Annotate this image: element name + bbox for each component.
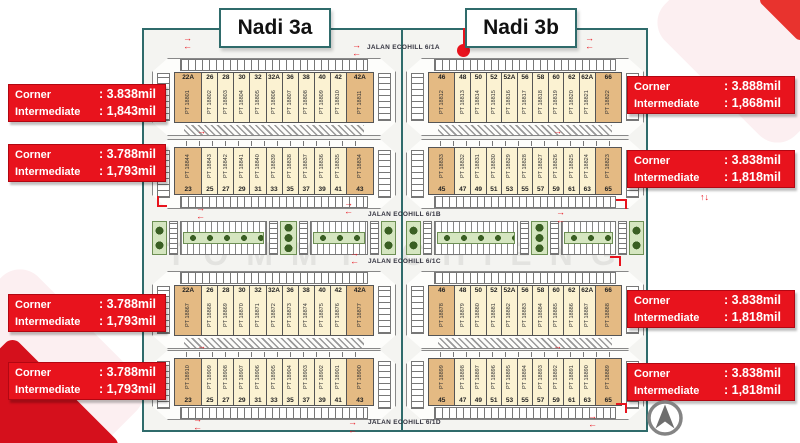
pt-number: PT 18840 [255,148,261,185]
pt-number: PT 18834 [357,148,363,185]
side-parking-strip [378,73,391,121]
pt-number: PT 18808 [303,82,309,122]
pt-number: PT 18806 [271,82,277,122]
housing-block: 22APT 1886726PT 1886828PT 1886930PT 1887… [152,271,396,349]
pt-number: PT 18872 [271,295,277,335]
lot-number: 45 [429,396,454,405]
landscaped-parking-strip [434,221,518,255]
pt-number: PT 18905 [271,359,277,396]
street-parking-strip [434,196,616,208]
back-lane-hatch [438,125,612,135]
price-banner: Corner: 3.788mil Intermediate: 1,793mil [8,362,166,400]
lot: 22APT 18867 [175,286,201,335]
block-middle: PT 1883345PT 1883247PT 1883149PT 1883051… [426,140,624,208]
traffic-arrow-icon: →← [348,419,357,434]
price-label: Intermediate [634,312,724,326]
lot-number: 29 [234,396,249,405]
pt-number: PT 18900 [357,359,363,396]
pt-number: PT 18812 [439,82,445,122]
pt-number: PT 18888 [605,295,611,335]
section-divider-line [401,28,403,432]
pt-number: PT 18818 [538,82,544,122]
lot-number: 38 [299,73,314,82]
lot-number: 62 [564,73,579,82]
price-value: : 3.788mil [99,365,159,381]
side-parking-strip [411,73,424,121]
housing-block: PT 1883345PT 1883247PT 1883149PT 1883051… [406,139,644,209]
lot-number: 31 [250,396,265,405]
pt-number: PT 18897 [475,359,481,396]
pt-number: PT 18895 [506,359,512,396]
lot-number: 55 [518,185,533,194]
pt-number: PT 18886 [569,295,575,335]
price-value: : 1,843mil [99,104,159,120]
lot-row: PT 1884423PT 1884325PT 1884227PT 1884129… [174,147,374,195]
street-label-6-1b: JALAN ECOHILL 6/1B [368,211,441,218]
lot: PT 1883247 [454,148,470,194]
traffic-arrow-icon: → [197,128,206,136]
pt-number: PT 18890 [584,359,590,396]
lot: 62PT 18820 [563,73,579,122]
lot: 58PT 18818 [532,73,548,122]
lot: PT 1890925 [201,359,217,405]
lot: PT 1884227 [217,148,233,194]
pt-number: PT 18903 [303,359,309,396]
price-banner: Corner: 3.788mil Intermediate: 1,793mil [8,294,166,332]
price-banner: Corner: 3.888mil Intermediate: 1,868mil [627,76,795,114]
block-middle: PT 1891023PT 1890925PT 1890827PT 1890729… [172,351,376,419]
lot-number: 28 [218,73,233,82]
lot: PT 1891023 [175,359,201,405]
street-parking-strip [434,59,616,71]
lot: PT 1890729 [233,359,249,405]
lot-row: 22APT 1886726PT 1886828PT 1886930PT 1887… [174,285,374,336]
pt-number: PT 18909 [207,359,213,396]
north-arrow-icon [645,398,685,438]
lot: 40PT 18875 [314,286,330,335]
pt-number: PT 18842 [223,148,229,185]
traffic-arrow-icon: → [197,343,206,351]
lot-number: 38 [299,286,314,295]
lot-number: 36 [283,73,298,82]
lot-number: 61 [564,396,579,405]
pt-number: PT 18827 [538,148,544,185]
lot-number: 45 [429,185,454,194]
price-value: : 1,793mil [99,314,159,330]
parking-bay-strip [169,221,178,255]
lot-number: 40 [315,73,330,82]
lot: PT 1888965 [595,359,621,405]
pt-number: PT 18811 [357,82,363,122]
lot: 32APT 18806 [266,73,282,122]
block-middle: 22APT 1880126PT 1880228PT 1880330PT 1880… [172,59,376,135]
pt-number: PT 18830 [491,148,497,185]
lot-number: 43 [347,396,373,405]
lot-row: 46PT 1881248PT 1881350PT 1881452PT 18815… [428,72,622,123]
pt-number: PT 18867 [185,295,191,335]
section-title-nadi-3b: Nadi 3b [465,8,577,48]
section-title-nadi-3a: Nadi 3a [219,8,331,48]
pt-number: PT 18833 [439,148,445,185]
lot-number: 53 [502,185,517,194]
lot-number: 32A [267,73,282,82]
lot: PT 1883639 [314,148,330,194]
lot: PT 1890435 [282,359,298,405]
pt-number: PT 18817 [522,82,528,122]
housing-block: PT 1884423PT 1884325PT 1884227PT 1884129… [152,139,396,209]
lot-number: 29 [234,185,249,194]
price-value: : 1,868mil [724,96,788,112]
pt-number: PT 18906 [255,359,261,396]
price-value: : 1,818mil [724,170,788,186]
lot: 66PT 18888 [595,286,621,335]
pt-number: PT 18876 [335,295,341,335]
road-corner-mark [616,199,627,209]
lot-number: 52 [487,73,502,82]
lot-number: 51 [487,396,502,405]
pt-number: PT 18841 [239,148,245,185]
lot-number: 31 [250,185,265,194]
price-label: Corner [634,155,724,169]
pt-number: PT 18870 [239,295,245,335]
pt-number: PT 18902 [319,359,325,396]
lot-number: 42 [331,73,346,82]
lot: PT 1883737 [298,148,314,194]
lot: PT 1889455 [517,359,533,405]
pt-number: PT 18885 [553,295,559,335]
pt-number: PT 18896 [491,359,497,396]
pt-number: PT 18829 [506,148,512,185]
lot-number: 35 [283,396,298,405]
pt-number: PT 18839 [271,148,277,185]
lot-number: 41 [331,185,346,194]
parking-bay-strip [269,221,278,255]
pt-number: PT 18802 [207,82,213,122]
pt-number: PT 18875 [319,295,325,335]
traffic-arrow-icon: →← [196,205,205,220]
lot: PT 1882757 [532,148,548,194]
lot-number: 33 [267,396,282,405]
pt-number: PT 18832 [460,148,466,185]
pt-number: PT 18898 [460,359,466,396]
lot: PT 1890533 [266,359,282,405]
pt-number: PT 18825 [569,148,575,185]
lot-number: 66 [596,286,621,295]
lot: PT 1889651 [486,359,502,405]
traffic-arrow-icon: →← [352,42,361,57]
lot-row: PT 1883345PT 1883247PT 1883149PT 1883051… [428,147,622,195]
pt-number: PT 18844 [185,148,191,185]
lot-number: 41 [331,396,346,405]
price-value: : 3.838mil [724,153,788,169]
lot-number: 49 [471,185,486,194]
back-lane-hatch [184,125,364,135]
price-value: : 3.838mil [724,366,788,382]
pt-number: PT 18805 [255,82,261,122]
traffic-arrow-icon: →← [344,200,353,215]
lot: 60PT 18819 [548,73,564,122]
block-middle: PT 1889945PT 1889847PT 1889749PT 1889651… [426,351,624,419]
price-value: : 3.838mil [99,87,159,103]
pt-number: PT 18883 [522,295,528,335]
lot: 66PT 18822 [595,73,621,122]
lot: 52PT 18815 [486,73,502,122]
lot: 62PT 18886 [563,286,579,335]
lot-number: 49 [471,396,486,405]
lot-number: 23 [175,185,201,194]
lot: PT 1890043 [346,359,373,405]
lot: 52PT 18881 [486,286,502,335]
block-middle: 46PT 1881248PT 1881350PT 1881452PT 18815… [426,59,624,135]
side-parking-strip [378,150,391,198]
lot: PT 1890141 [330,359,346,405]
lot: 38PT 18808 [298,73,314,122]
pt-number: PT 18869 [223,295,229,335]
lot-number: 42A [347,286,373,295]
pt-number: PT 18823 [605,148,611,185]
lot: 42PT 18876 [330,286,346,335]
traffic-arrow-icon: → [553,343,562,351]
block-middle: 46PT 1887848PT 1887950PT 1888052PT 18881… [426,272,624,348]
pt-number: PT 18843 [207,148,213,185]
price-label: Corner [15,299,99,313]
price-value: : 1,793mil [99,164,159,180]
pt-number: PT 18826 [553,148,559,185]
lot-edge-ticks [186,141,362,146]
lot-number: 32A [267,286,282,295]
landscaped-parking-strip [310,221,368,255]
lot: 30PT 18870 [233,286,249,335]
pt-number: PT 18907 [239,359,245,396]
lot-number: 37 [299,396,314,405]
lot-row: 46PT 1887848PT 1887950PT 1888052PT 18881… [428,285,622,336]
pt-number: PT 18881 [491,295,497,335]
lot: PT 1889749 [470,359,486,405]
pt-number: PT 18807 [287,82,293,122]
tree-cluster [152,221,167,255]
lot-number: 26 [202,73,217,82]
price-value: : 3.888mil [724,79,788,95]
lot: 40PT 18809 [314,73,330,122]
lot-number: 51 [487,185,502,194]
lot-number: 46 [429,286,454,295]
lot: PT 1889063 [579,359,595,405]
pt-number: PT 18889 [605,359,611,396]
lot: 58PT 18884 [532,286,548,335]
pt-number: PT 18871 [255,295,261,335]
lot-number: 63 [580,185,595,194]
lot: 48PT 18813 [454,73,470,122]
pt-number: PT 18804 [239,82,245,122]
lot-number: 42 [331,286,346,295]
lot-number: 50 [471,73,486,82]
pt-number: PT 18828 [522,148,528,185]
landscaped-parking-strip [180,221,267,255]
lot: PT 1884031 [249,148,265,194]
lot-number: 52A [502,73,517,82]
back-lane-hatch [438,338,612,348]
traffic-arrow-icon: →← [588,413,597,428]
lot-number: 55 [518,396,533,405]
lot-number: 56 [518,286,533,295]
lot: 48PT 18879 [454,286,470,335]
lot-number: 36 [283,286,298,295]
lot-number: 59 [549,396,564,405]
price-banner: Corner: 3.838mil Intermediate: 1,843mil [8,84,166,122]
lot-number: 48 [455,73,470,82]
lot-number: 59 [549,185,564,194]
street-parking-strip [180,272,368,284]
lot-number: 25 [202,185,217,194]
lot-number: 62A [580,73,595,82]
lot: PT 1884325 [201,148,217,194]
side-parking-strip [378,361,391,409]
pt-number: PT 18824 [584,148,590,185]
price-label: Intermediate [15,106,99,120]
lot: PT 1883933 [266,148,282,194]
lot: PT 1889259 [548,359,564,405]
lot-number: 39 [315,185,330,194]
pt-number: PT 18878 [439,295,445,335]
lot: PT 1890827 [217,359,233,405]
pt-number: PT 18882 [506,295,512,335]
street-label-6-1a: JALAN ECOHILL 6/1A [367,44,440,51]
site-plan: TOMMY CHIENG Nadi 3a Nadi 3b JALAN ECOHI… [0,0,800,443]
lot-number: 50 [471,286,486,295]
pt-number: PT 18891 [569,359,575,396]
pt-number: PT 18813 [460,82,466,122]
pt-number: PT 18893 [538,359,544,396]
lot-number: 32 [250,286,265,295]
lot: 46PT 18878 [429,286,454,335]
lot-number: 52 [487,286,502,295]
lot-number: 42A [347,73,373,82]
lot: PT 1883443 [346,148,373,194]
road-corner-mark [616,403,627,413]
housing-block: PT 1889945PT 1889847PT 1889749PT 1889651… [406,350,644,420]
pt-number: PT 18822 [605,82,611,122]
lot-number: 48 [455,286,470,295]
lot-number: 57 [533,185,548,194]
pt-number: PT 18838 [287,148,293,185]
price-value: : 3.788mil [99,297,159,313]
pt-number: PT 18868 [207,295,213,335]
price-label: Intermediate [15,166,99,180]
street-label-6-1d: JALAN ECOHILL 6/1D [368,419,441,426]
lot: 26PT 18868 [201,286,217,335]
parking-bay-strip [423,221,432,255]
landscaped-median [152,221,396,255]
block-middle: 22APT 1886726PT 1886828PT 1886930PT 1887… [172,272,376,348]
lot: PT 1890631 [249,359,265,405]
street-parking-strip [434,272,616,284]
lot-row: 22APT 1880126PT 1880228PT 1880330PT 1880… [174,72,374,123]
lot-number: 61 [564,185,579,194]
pt-number: PT 18821 [584,82,590,122]
lot-number: 52A [502,286,517,295]
lot-number: 57 [533,396,548,405]
lot: PT 1882365 [595,148,621,194]
lot: PT 1883051 [486,148,502,194]
pt-number: PT 18815 [491,82,497,122]
lot: 30PT 18804 [233,73,249,122]
housing-block: 22APT 1880126PT 1880228PT 1880330PT 1880… [152,58,396,136]
lot-number: 23 [175,396,201,405]
pt-number: PT 18801 [185,82,191,122]
lot-number: 46 [429,73,454,82]
price-banner: Corner: 3.788mil Intermediate: 1,793mil [8,144,166,182]
lot: 56PT 18883 [517,286,533,335]
lot: PT 1884129 [233,148,249,194]
lot: PT 1889847 [454,359,470,405]
price-value: : 3.788mil [99,147,159,163]
lot-number: 26 [202,286,217,295]
lot: PT 1883835 [282,148,298,194]
side-parking-strip [411,150,424,198]
street-parking-strip [180,407,368,419]
lot: PT 1883345 [429,148,454,194]
lot-number: 60 [549,286,564,295]
lot: 62APT 18821 [579,73,595,122]
lot-number: 47 [455,396,470,405]
price-label: Corner [15,367,99,381]
lot: 28PT 18869 [217,286,233,335]
price-label: Intermediate [15,316,99,330]
lot: PT 1890239 [314,359,330,405]
lot-number: 56 [518,73,533,82]
pt-number: PT 18836 [319,148,325,185]
housing-block: PT 1891023PT 1890925PT 1890827PT 1890729… [152,350,396,420]
lot-number: 58 [533,286,548,295]
pt-number: PT 18879 [460,295,466,335]
traffic-arrow-icon: →← [556,209,565,224]
traffic-arrow-icon: →← [183,35,192,50]
pt-number: PT 18904 [287,359,293,396]
lot: PT 1889357 [532,359,548,405]
lot-number: 32 [250,73,265,82]
parking-bay-strip [370,221,379,255]
lot: 52APT 18882 [501,286,517,335]
pt-number: PT 18894 [522,359,528,396]
pt-number: PT 18910 [185,359,191,396]
lot-number: 37 [299,185,314,194]
side-parking-strip [378,286,391,334]
street-parking-strip [180,59,368,71]
pt-number: PT 18880 [475,295,481,335]
lot-number: 43 [347,185,373,194]
price-label: Intermediate [634,98,724,112]
pt-number: PT 18803 [223,82,229,122]
lot-number: 22A [175,73,201,82]
parking-bay-strip [550,221,559,255]
price-label: Corner [634,368,724,382]
tree-island [531,221,548,255]
pt-number: PT 18837 [303,148,309,185]
road-corner-mark [610,256,621,266]
pt-number: PT 18819 [553,82,559,122]
lot: PT 1884423 [175,148,201,194]
lot-number: 47 [455,185,470,194]
pt-number: PT 18892 [553,359,559,396]
lot-number: 35 [283,185,298,194]
lot-number: 40 [315,286,330,295]
tree-island [280,221,297,255]
price-label: Intermediate [634,385,724,399]
pt-number: PT 18814 [475,82,481,122]
lot-number: 30 [234,286,249,295]
lot: 32PT 18871 [249,286,265,335]
lot: PT 1882855 [517,148,533,194]
